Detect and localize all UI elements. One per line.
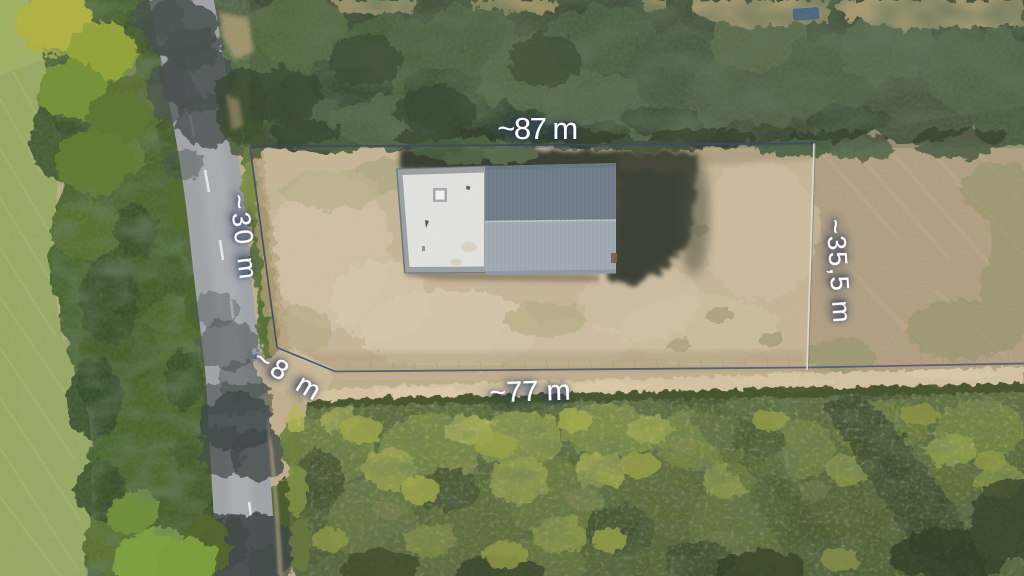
svg-text:~87 m: ~87 m bbox=[497, 111, 577, 146]
svg-text:~77 m: ~77 m bbox=[489, 375, 571, 410]
